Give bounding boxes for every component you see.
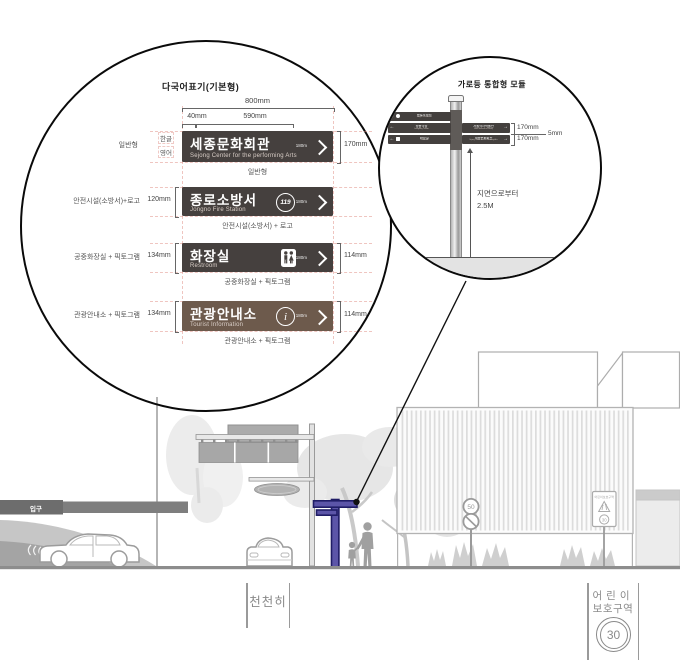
row1-height-bracket [337,131,341,164]
module-gap-label: 5mm [548,130,562,137]
restroom-pictogram-icon [281,249,296,272]
sign-kr-text: 세종문화회관 [190,133,271,153]
road-marking-border [638,583,640,660]
row3-dim-label: 134mm [146,252,172,259]
sign-en-text: Sejong Center for the performing Arts [190,153,297,159]
car-front [247,538,292,566]
fingerboard-en: Seoul Museum of History [464,129,503,131]
school-sign-title: 어린이보호구역 [595,494,615,499]
dim-total-label: 800mm [182,96,333,105]
sign-distance: 180m [296,199,307,204]
dim-left-label: 40mm [184,113,210,120]
row4-height-bracket [337,301,341,333]
row4-label: 관광안내소 + 픽토그램 [40,310,140,320]
entrance-label: 입구 [30,503,42,513]
fingerboard-en: Restroom [400,140,449,142]
module-gap-tick [532,134,546,135]
module-ground [380,257,602,280]
fingerboard-en: Sejong Center for the Performing Arts [464,140,503,142]
row1-lang2-label: 영어 [159,147,173,157]
sign-distance: 180m [296,313,307,318]
speed-limit-text: 50 [467,504,475,511]
module-detail-circle: 가로등 통합형 모듈 ← 종로소방서Jongno Fire Station ← … [378,56,602,280]
module-note-line1: 지면으로부터 [477,188,518,199]
module-dim1-label: 170mm [517,124,539,131]
spec-title: 다국어표기(기본형) [162,80,239,93]
school-sign-speed: 30 [602,517,607,522]
module-pole-mount [450,110,462,150]
module-height-dimline [470,152,471,257]
dim-mid-label: 590mm [212,113,298,120]
row1-type-label: 일반형 [88,140,138,150]
fingerboard-en: Jongno Fire Station [400,117,449,119]
row4-caption: 관광안내소 + 픽토그램 [182,336,333,346]
row3-caption: 공중화장실 + 픽토그램 [182,277,333,287]
row1-caption: 일반형 [182,167,333,177]
module-fingerboard-left: ← 종로소방서Jongno Fire Station [388,112,451,122]
fingerboard-en: Jeongdong Theater [395,129,449,131]
module-dim2-label: 170mm [517,135,539,142]
module-height-dimarrow [467,148,473,153]
signage-guideline-page: 50 어린이보호구역 30 [0,0,680,672]
row2-dim-label: 120mm [146,196,172,203]
grass [428,542,615,566]
module-note-line2: 2.5M [477,201,494,210]
row3-height-label: 114mm [344,252,367,259]
sign-sejong-center: 세종문화회관 Sejong Center for the performing … [182,131,333,162]
row4-height-label: 114mm [344,311,367,318]
sign-en-text: Jongno Fire Station [190,207,246,213]
school-zone-speed-circle: 30 [596,617,631,652]
sign-restroom: 화장실 Restroom 180m [182,243,333,272]
dim-total-bracket [182,108,335,112]
row4-dim-label: 134mm [146,310,172,317]
row3-height-bracket [337,243,341,274]
sign-kr-text: 화장실 [190,245,230,265]
row2-label: 안전시설(소방서)+로고 [40,196,140,206]
arrow-right-icon: → [503,125,508,130]
arrow-right-icon [312,251,328,267]
row2-dim-bracket [175,187,179,218]
sign-distance: 180m [296,143,307,148]
badge-119-icon: 119 [276,193,295,212]
module-title: 가로등 통합형 모듈 [380,79,602,90]
sign-en-text: Tourist Information [190,322,243,328]
sign-tourist-info: 관광안내소 Tourist Information i 180m [182,301,333,331]
module-fingerboard-right: 서울역사박물관Seoul Museum of History → [462,123,510,133]
module-dim-bracket [511,123,515,146]
sign-kr-text: 종로소방서 [190,189,257,209]
row2-caption: 안전시설(소방서) + 로고 [182,221,333,231]
dim-mid-bracket [195,124,294,128]
row1-lang1-label: 한글 [159,133,173,143]
building-far-right [636,490,680,566]
louvered-building [397,408,633,567]
building-blocks-right [479,352,680,408]
module-pole-cap [448,95,464,102]
school-zone-text-line2: 보호구역 [589,601,637,616]
row4-dim-bracket [175,301,179,333]
module-fingerboard-right: 세종문화회관Sejong Center for the Performing A… [462,135,510,145]
sign-kr-text: 관광안내소 [190,303,257,323]
arrow-right-icon [312,140,328,156]
arrow-right-icon: → [503,137,508,142]
arrow-left-icon: ← [390,137,395,142]
sign-en-text: Restroom [190,263,218,269]
row1-height-label: 170mm [344,141,367,148]
info-icon: i [276,307,295,326]
row3-dim-bracket [175,243,179,274]
module-fingerboard-left: ← 정동극장Jeongdong Theater [388,123,451,133]
school-zone-speed-text: 30 [600,621,628,649]
arrow-right-icon [312,309,328,325]
arrow-right-icon [312,195,328,211]
ground-line [0,566,680,569]
slow-marking-text: 천천히 [246,591,290,610]
row3-label: 공중화장실 + 픽토그램 [40,252,140,262]
sign-distance: 180m [296,255,307,260]
arrow-left-icon: ← [390,114,395,119]
module-fingerboard-left: ← 화장실Restroom [388,135,451,145]
sign-fire-station: 종로소방서 Jongno Fire Station 119 180m [182,187,333,216]
